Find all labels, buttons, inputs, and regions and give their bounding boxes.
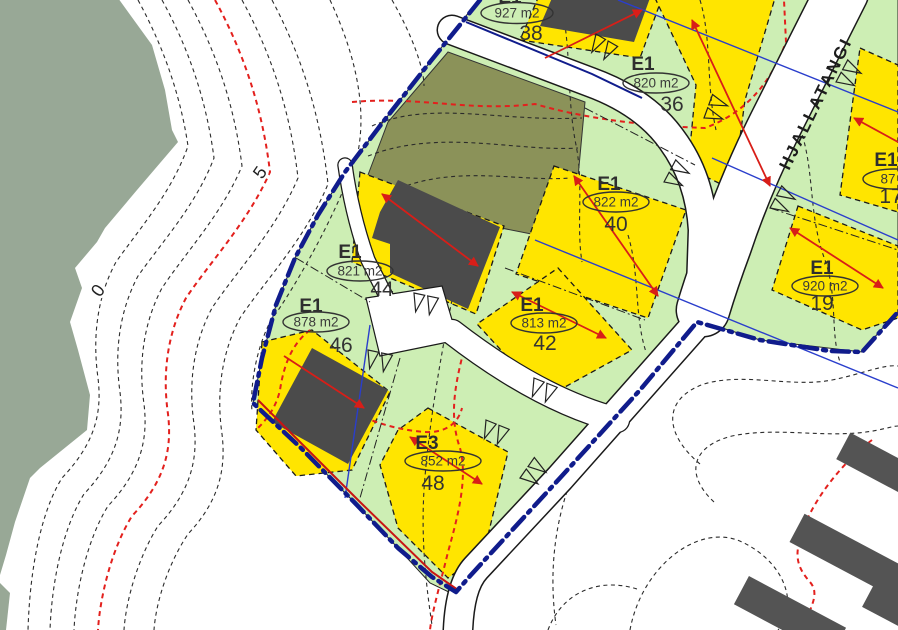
plot-number-label: 48 [421,472,444,495]
plot-number-label: 40 [604,213,627,236]
plot-number-label: 38 [519,22,542,45]
plot-number-label: 17 [879,185,898,208]
plot-area-label: 878 m2 [293,315,338,330]
plot-number-label: 19 [810,292,833,315]
plot-area-label: 821 m2 [337,264,382,279]
plot-area-label: 927 m2 [494,6,539,21]
plot-area-label: 852 m2 [420,454,465,469]
plot-zone-label: E1 [631,54,655,75]
zoning-map: E1 927 m2 38 E1 820 m2 36 E1 822 m2 40 E… [0,0,898,630]
plot-number-label: 46 [329,334,352,357]
plot-zone-label: E1 [874,150,898,171]
plot-zone-label: E1 [338,242,362,263]
plot-number-label: 36 [660,93,683,116]
plot-number-label: 42 [533,332,556,355]
plot-area-label: 822 m2 [593,195,638,210]
map-canvas: E1 927 m2 38 E1 820 m2 36 E1 822 m2 40 E… [0,0,898,630]
plot-area-label: 813 m2 [521,316,566,331]
plot-area-label: 820 m2 [633,76,678,91]
plot-number-label: 44 [370,278,394,301]
